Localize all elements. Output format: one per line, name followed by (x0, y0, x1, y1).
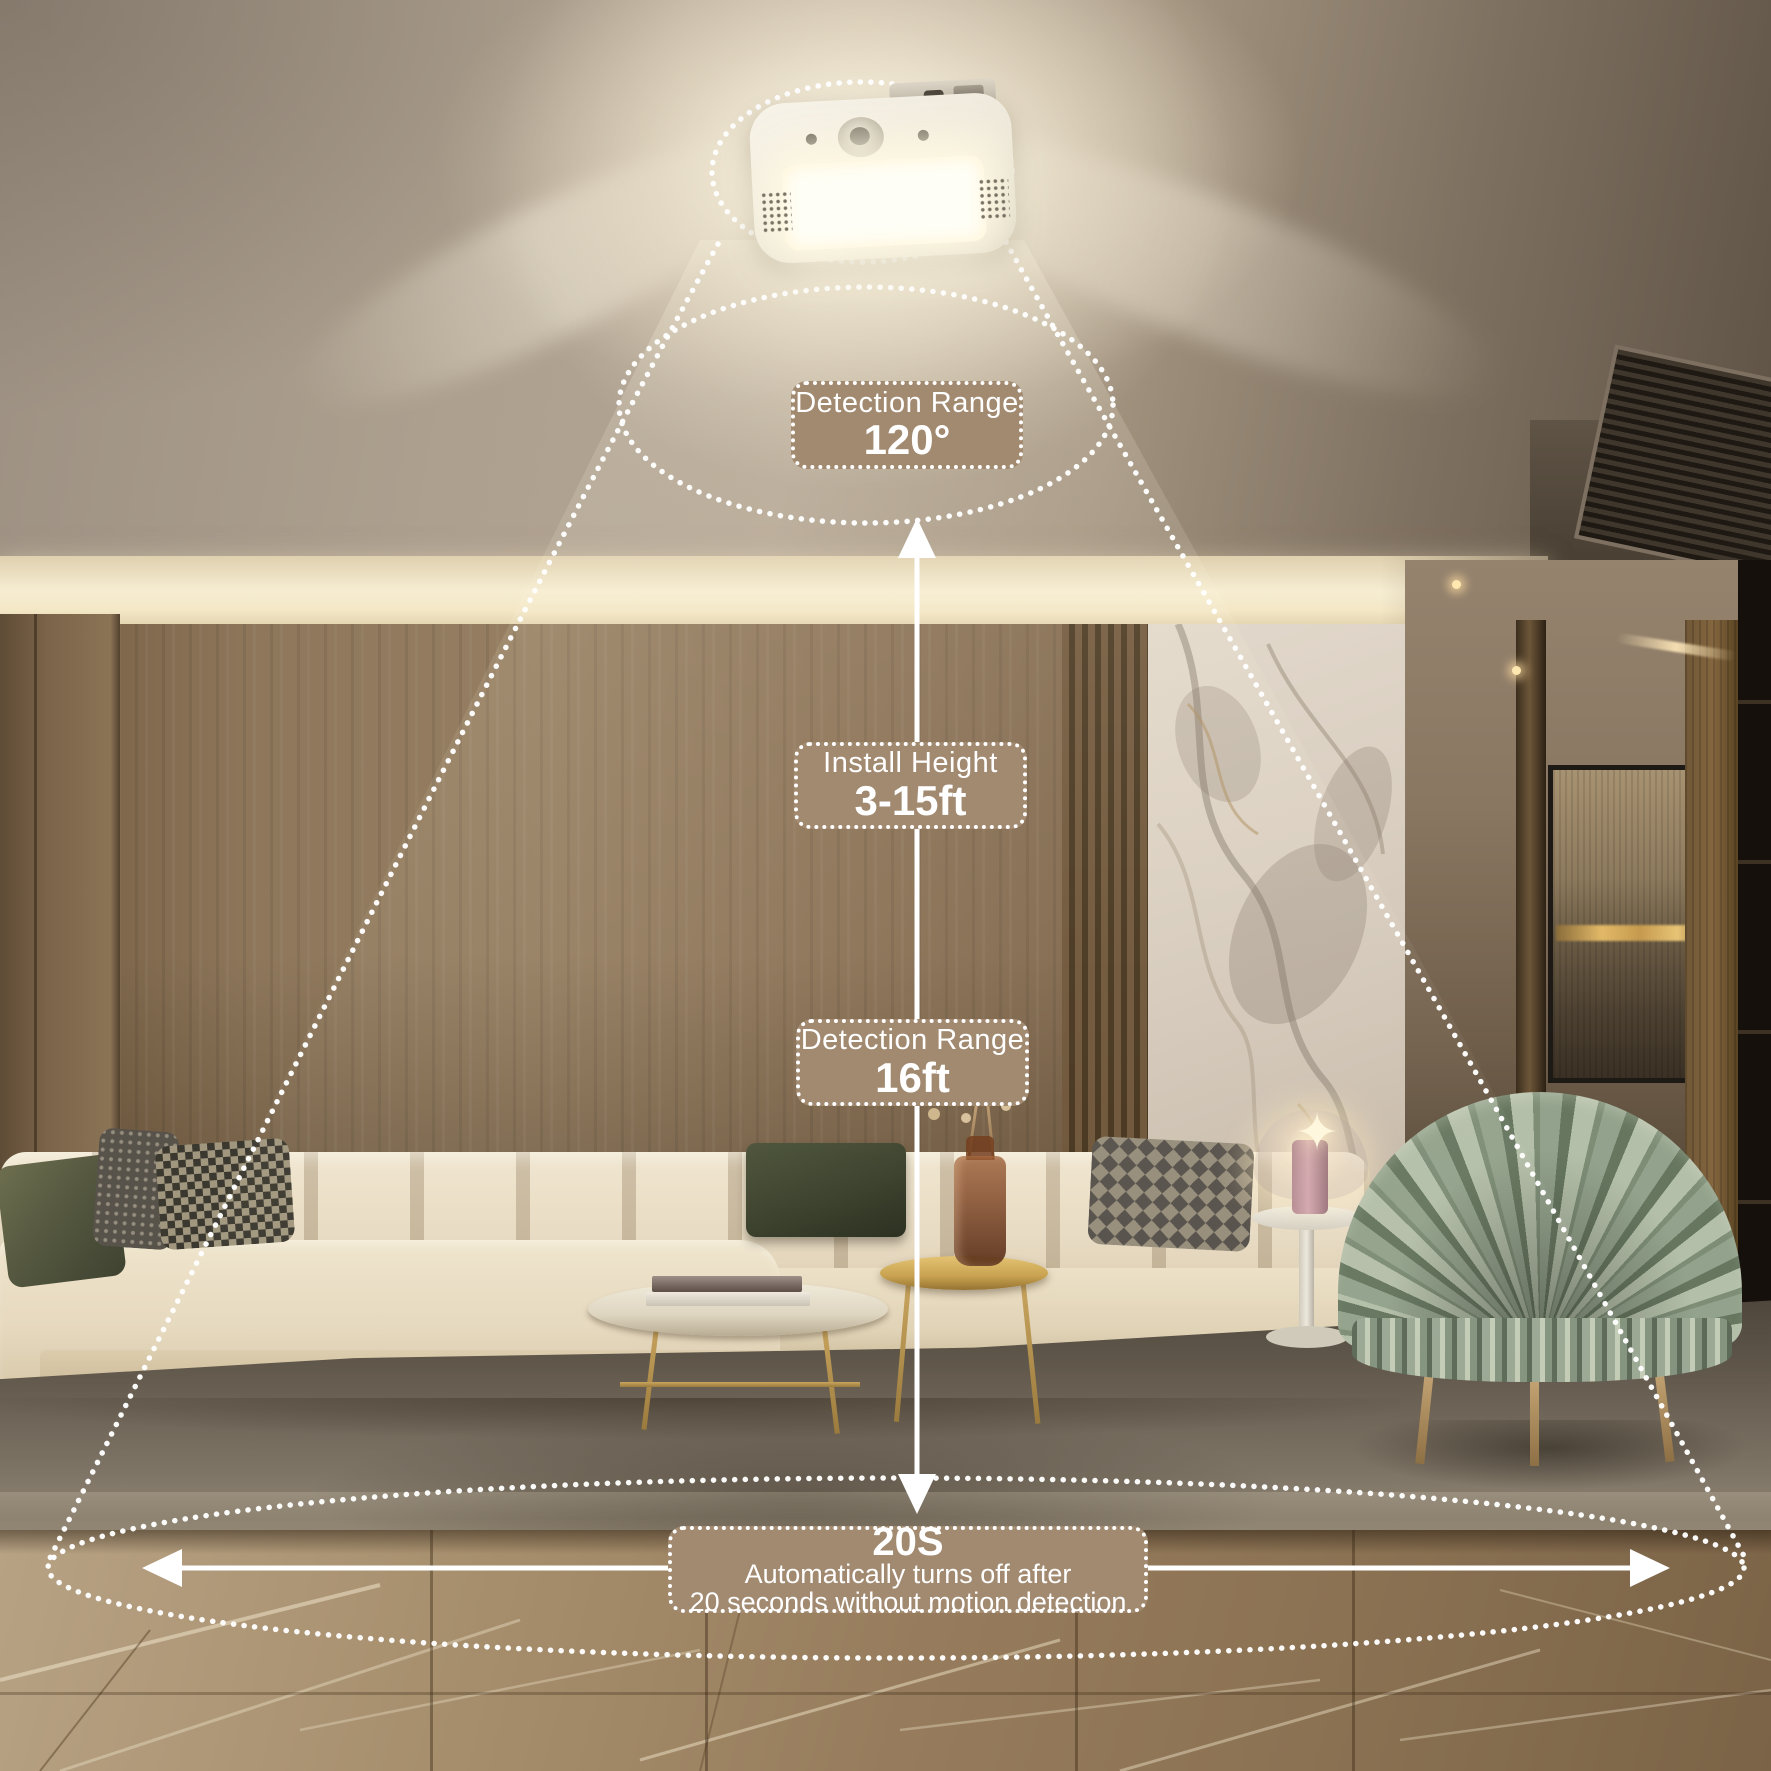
callout-auto-off: 20S Automatically turns off after 20 sec… (668, 1526, 1148, 1613)
product-infographic: ✦ Detection Range 120° Install Heig (0, 0, 1771, 1771)
shelf-line (1738, 1200, 1771, 1204)
fixture-body (748, 91, 1018, 264)
vent-grille-left (761, 191, 793, 235)
shelf-unit (1738, 560, 1771, 1420)
callout-detection-distance-value: 16ft (875, 1056, 950, 1100)
amber-vase (954, 1156, 1006, 1266)
callout-detection-distance: Detection Range 16ft (796, 1019, 1029, 1106)
callout-auto-off-line2: 20 seconds without motion detection (690, 1589, 1127, 1617)
shelf-line (1738, 1030, 1771, 1034)
chair-shadow (1350, 1420, 1750, 1490)
lamp-glow-star: ✦ (1282, 1098, 1352, 1168)
callout-detection-angle-title: Detection Range (795, 388, 1019, 418)
book (652, 1276, 802, 1292)
motion-sensor-light (748, 91, 1018, 264)
wall-corner-line (34, 614, 37, 1224)
callout-detection-angle-value: 120° (864, 418, 951, 462)
floor-seam (1352, 1530, 1355, 1771)
callout-auto-off-headline: 20S (872, 1523, 943, 1561)
shelf-line (1738, 700, 1771, 704)
chair-leg (1530, 1378, 1539, 1466)
indicator-dot (806, 133, 818, 145)
led-panel (781, 155, 987, 251)
vent-grille-right (978, 177, 1010, 221)
light-sensor-dot (918, 130, 930, 142)
wood-wall (0, 624, 1168, 1224)
table-brace (620, 1382, 860, 1387)
pedestal-table-base (1266, 1326, 1348, 1348)
pir-sensor-lens (849, 127, 870, 146)
floor-seam (0, 1692, 1771, 1695)
pillow-diamond-pattern (1087, 1136, 1254, 1252)
spotlight-dot (1512, 666, 1521, 675)
pillow-houndstooth (155, 1137, 296, 1250)
floor-seam (430, 1530, 433, 1771)
book (646, 1292, 810, 1306)
callout-detection-distance-title: Detection Range (801, 1025, 1025, 1055)
pir-sensor-dome (837, 116, 885, 158)
callout-install-height: Install Height 3-15ft (794, 742, 1027, 829)
spotlight-dot (1452, 580, 1461, 589)
rug-edge-highlight (0, 1492, 1771, 1518)
pillow-olive-lumbar (746, 1143, 906, 1237)
callout-detection-angle: Detection Range 120° (791, 381, 1023, 469)
callout-install-height-value: 3-15ft (854, 779, 966, 823)
shell-chair-loops (1352, 1318, 1732, 1382)
shelf-line (1738, 860, 1771, 864)
sofa-shadow (0, 1398, 1400, 1438)
callout-auto-off-line1: Automatically turns off after (745, 1561, 1072, 1589)
pedestal-table-column (1299, 1222, 1314, 1334)
callout-install-height-title: Install Height (823, 748, 998, 778)
